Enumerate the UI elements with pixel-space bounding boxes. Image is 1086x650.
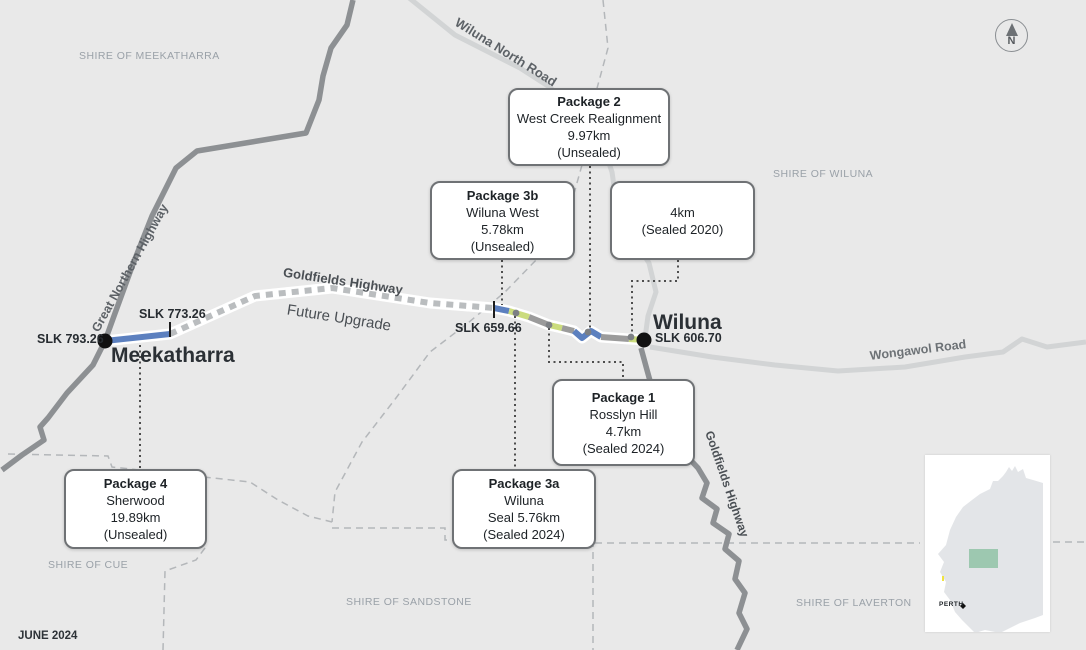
slk-793-label: SLK 793.26 (37, 332, 104, 346)
shire-label-laverton: SHIRE OF LAVERTON (796, 597, 912, 609)
north-label: N (1008, 35, 1016, 47)
project-map: SHIRE OF MEEKATHARRA SHIRE OF WILUNA SHI… (0, 0, 1086, 650)
great-northern-highway (2, 0, 353, 470)
callout-line: 4.7km (606, 423, 641, 440)
callout-line: 4km (670, 204, 695, 221)
callout-sealed-2020: 4km (Sealed 2020) (610, 181, 755, 260)
callout-title: Package 1 (592, 389, 656, 406)
callout-line: Sherwood (106, 492, 165, 509)
project-area-highlight (969, 549, 998, 568)
slk-659-label: SLK 659.66 (455, 321, 522, 335)
node-dot (585, 329, 592, 336)
callout-line: (Unsealed) (104, 526, 168, 543)
node-dot (513, 310, 520, 317)
segment-package3b-unsealed (494, 308, 509, 311)
callout-line: West Creek Realignment (517, 110, 661, 127)
shire-label-cue: SHIRE OF CUE (48, 559, 128, 571)
map-date-label: JUNE 2024 (18, 630, 77, 642)
callout-line: (Sealed 2020) (642, 221, 724, 238)
callout-package-2: Package 2 West Creek Realignment 9.97km … (508, 88, 670, 166)
perth-label: PERTH (939, 601, 964, 608)
wiluna-town-marker (637, 333, 652, 348)
wiluna-town-label: Wiluna (653, 311, 722, 335)
segment-existing-b (562, 328, 574, 331)
callout-title: Package 4 (104, 475, 168, 492)
callout-line: (Sealed 2024) (583, 440, 665, 457)
meekatharra-town-label: Meekatharra (111, 344, 235, 368)
callout-line: Seal 5.76km (488, 509, 560, 526)
north-arrow-icon: N (995, 19, 1028, 52)
coast-highlight (942, 576, 944, 581)
shire-label-sandstone: SHIRE OF SANDSTONE (346, 596, 472, 608)
callout-package-3b: Package 3b Wiluna West 5.78km (Unsealed) (430, 181, 575, 260)
callout-title: Package 3b (467, 187, 539, 204)
callout-line: Wiluna West (466, 204, 539, 221)
shire-label-wiluna: SHIRE OF WILUNA (773, 168, 873, 180)
callout-title: Package 3a (489, 475, 560, 492)
node-dot (546, 322, 553, 329)
callout-title: Package 2 (557, 93, 621, 110)
slk-773-label: SLK 773.26 (139, 307, 206, 321)
callout-package-1: Package 1 Rosslyn Hill 4.7km (Sealed 202… (552, 379, 695, 466)
segment-existing-c (601, 337, 629, 339)
callout-line: 19.89km (111, 509, 161, 526)
callout-line: (Sealed 2024) (483, 526, 565, 543)
callout-package-3a: Package 3a Wiluna Seal 5.76km (Sealed 20… (452, 469, 596, 549)
callout-line: (Unsealed) (557, 144, 621, 161)
callout-line: 9.97km (568, 127, 611, 144)
callout-line: Rosslyn Hill (590, 406, 658, 423)
callout-line: (Unsealed) (471, 238, 535, 255)
wa-locator-inset: PERTH (925, 455, 1050, 632)
node-dot (628, 334, 635, 341)
callout-line: Wiluna (504, 492, 544, 509)
callout-line: 5.78km (481, 221, 524, 238)
wiluna-north-road (408, 0, 656, 338)
shire-label-meekatharra: SHIRE OF MEEKATHARRA (79, 50, 220, 62)
callout-package-4: Package 4 Sherwood 19.89km (Unsealed) (64, 469, 207, 549)
